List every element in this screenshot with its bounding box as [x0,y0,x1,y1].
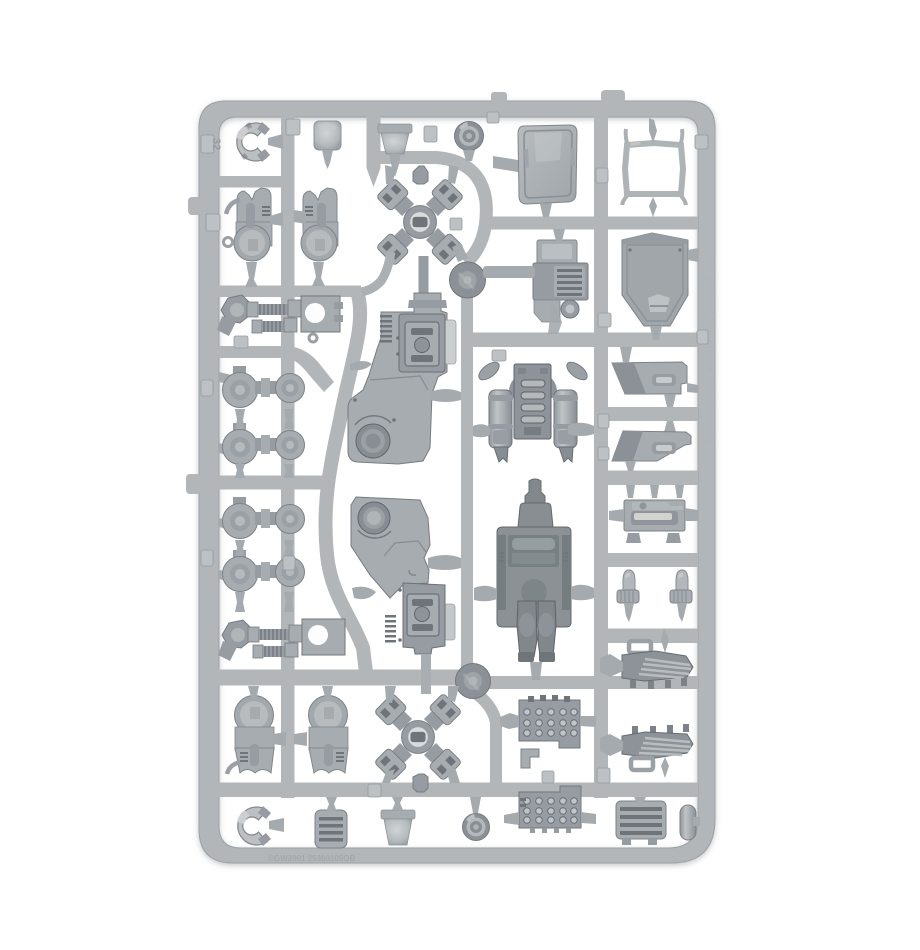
svg-text:32: 32 [210,138,222,150]
svg-text:GW Citadel Miniatures Dreadnou: GW Citadel Miniatures Dreadnought [706,256,716,443]
svg-text:©GW2001 25360105OB: ©GW2001 25360105OB [268,854,356,863]
